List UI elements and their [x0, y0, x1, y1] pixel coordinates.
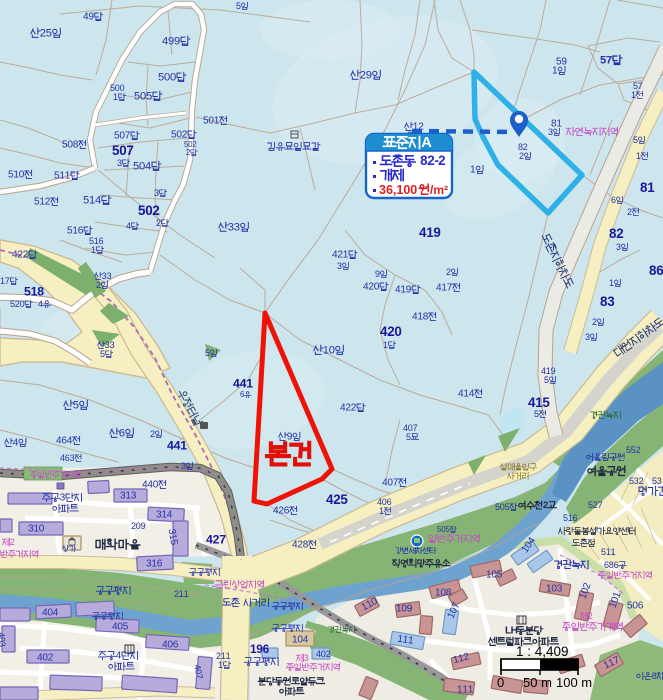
svg-text:2: 2 [152, 203, 159, 218]
svg-text:3: 3 [0, 641, 7, 647]
svg-text:7: 7 [638, 81, 643, 91]
svg-text:5: 5 [497, 570, 503, 581]
svg-text:2: 2 [588, 611, 593, 621]
svg-text:1: 1 [631, 90, 636, 100]
svg-text:2: 2 [636, 445, 641, 455]
svg-text:1: 1 [468, 685, 474, 696]
svg-text:6: 6 [284, 506, 290, 517]
svg-text:4: 4 [38, 299, 43, 309]
svg-text:7: 7 [598, 500, 603, 510]
svg-text:2: 2 [48, 653, 54, 664]
svg-text:4: 4 [145, 161, 151, 173]
svg-text:4: 4 [126, 221, 131, 231]
svg-text:6: 6 [78, 226, 84, 237]
svg-text:5: 5 [146, 91, 152, 103]
svg-text:1: 1 [343, 250, 349, 261]
svg-text:1: 1 [470, 165, 476, 176]
svg-text:5: 5 [445, 525, 450, 534]
svg-text:3: 3 [304, 653, 309, 663]
svg-text:9: 9 [375, 269, 380, 279]
svg-text:4: 4 [53, 608, 59, 619]
svg-text:9: 9 [407, 604, 413, 615]
svg-text:8: 8 [37, 284, 44, 298]
svg-text:6: 6 [99, 236, 104, 246]
svg-text:1 : 4,409: 1 : 4,409 [516, 644, 569, 659]
svg-text:7: 7 [447, 283, 453, 294]
svg-text:5: 5 [205, 348, 210, 358]
svg-text:7: 7 [219, 532, 226, 546]
svg-text:1: 1 [609, 278, 614, 288]
svg-text:0: 0 [153, 480, 159, 491]
svg-text:5: 5 [123, 622, 129, 633]
svg-text:50 m: 50 m [523, 675, 552, 690]
svg-text:3: 3 [607, 294, 614, 309]
svg-text:3: 3 [117, 158, 122, 168]
svg-text:8: 8 [446, 588, 452, 599]
svg-text:7: 7 [125, 131, 131, 142]
svg-text:6: 6 [240, 390, 244, 399]
svg-text:5: 5 [73, 400, 79, 412]
svg-text:6: 6 [656, 263, 663, 278]
svg-text:5: 5 [406, 432, 411, 442]
svg-text:1: 1 [636, 151, 641, 161]
svg-text:0: 0 [329, 345, 335, 357]
svg-text:4: 4 [116, 651, 122, 662]
svg-text:9: 9 [88, 12, 94, 23]
svg-text:3: 3 [181, 461, 186, 471]
svg-text:5: 5 [100, 349, 105, 359]
svg-text:6: 6 [387, 497, 392, 507]
svg-text:7: 7 [393, 478, 399, 489]
svg-text:0: 0 [120, 83, 125, 93]
svg-text:7: 7 [5, 276, 10, 286]
svg-text:3: 3 [548, 127, 553, 137]
svg-text:3: 3 [107, 271, 112, 281]
svg-text:1: 1 [383, 340, 388, 350]
svg-text:0: 0 [20, 299, 25, 309]
svg-text:A: A [421, 135, 432, 151]
svg-text:7: 7 [413, 423, 418, 433]
svg-text:36,100: 36,100 [379, 183, 417, 197]
svg-text:1: 1 [184, 589, 189, 599]
svg-text:5: 5 [46, 28, 52, 40]
svg-text:2: 2 [616, 226, 623, 241]
svg-text:2: 2 [543, 500, 548, 511]
svg-text:1: 1 [226, 651, 231, 661]
svg-text:2: 2 [10, 537, 15, 547]
svg-text:2: 2 [23, 250, 29, 261]
svg-text:2: 2 [639, 476, 644, 486]
svg-text:3: 3 [110, 340, 115, 350]
svg-text:9: 9 [433, 225, 440, 240]
svg-text:1: 1 [379, 506, 384, 516]
svg-text:/m²: /m² [430, 183, 448, 197]
svg-text:4: 4 [95, 195, 101, 207]
svg-text:9: 9 [287, 432, 293, 443]
svg-text:2: 2 [519, 151, 524, 161]
svg-text:1: 1 [180, 438, 187, 452]
svg-text:1: 1 [214, 116, 220, 127]
svg-text:9: 9 [561, 57, 567, 68]
svg-text:7: 7 [606, 55, 612, 67]
svg-text:8: 8 [303, 540, 309, 551]
svg-text:9: 9 [406, 285, 412, 296]
svg-text:5: 5 [633, 135, 638, 145]
svg-text:1: 1 [113, 92, 118, 102]
svg-text:0: 0 [39, 524, 45, 535]
svg-text:2: 2 [627, 207, 632, 217]
svg-text:8: 8 [652, 671, 657, 681]
svg-text:2: 2 [45, 197, 51, 208]
svg-text:0: 0 [394, 324, 401, 339]
svg-text:2: 2 [351, 403, 357, 414]
svg-text:5: 5 [534, 409, 539, 419]
svg-text:1: 1 [246, 376, 253, 390]
svg-text:0: 0 [374, 282, 380, 293]
svg-text:6: 6 [263, 642, 270, 656]
svg-text:2: 2 [186, 148, 190, 157]
svg-text:2: 2 [438, 153, 445, 168]
svg-text:5: 5 [505, 502, 510, 512]
svg-text:3: 3 [154, 188, 159, 198]
svg-text:1: 1 [552, 66, 558, 77]
svg-text:9: 9 [551, 366, 556, 376]
svg-text:7: 7 [126, 143, 133, 158]
svg-text:1: 1 [65, 171, 71, 182]
svg-text:0: 0 [19, 170, 25, 181]
svg-text:6: 6 [157, 559, 163, 570]
svg-text:1: 1 [647, 180, 655, 195]
svg-text:4: 4 [167, 510, 173, 521]
svg-text:2: 2 [192, 140, 196, 149]
svg-text:2: 2 [592, 317, 597, 327]
svg-text:3: 3 [234, 222, 240, 234]
svg-text:5: 5 [340, 492, 348, 507]
svg-text:2: 2 [446, 267, 451, 277]
svg-text:5: 5 [544, 375, 549, 385]
svg-text:4: 4 [469, 389, 475, 400]
svg-text:8: 8 [423, 312, 429, 323]
svg-text:100 m: 100 m [556, 675, 592, 690]
svg-text:6: 6 [173, 640, 179, 651]
svg-text:4: 4 [303, 635, 309, 646]
svg-text:6: 6 [119, 428, 125, 440]
svg-text:0: 0 [497, 675, 504, 690]
svg-text:9: 9 [174, 36, 180, 48]
svg-text:3: 3 [616, 242, 621, 252]
svg-text:3: 3 [70, 453, 75, 463]
svg-text:3: 3 [337, 261, 342, 271]
svg-text:9: 9 [366, 70, 372, 82]
svg-text:6: 6 [638, 601, 644, 612]
svg-text:1: 1 [611, 547, 616, 557]
svg-text:6: 6 [573, 513, 578, 523]
svg-text:1: 1 [91, 245, 96, 255]
svg-text:4: 4 [13, 438, 19, 449]
svg-text:1: 1 [218, 660, 223, 670]
svg-text:0: 0 [170, 72, 176, 84]
svg-text:5: 5 [542, 395, 550, 410]
svg-text:2: 2 [150, 429, 155, 439]
svg-text:6: 6 [614, 560, 619, 570]
svg-text:8: 8 [73, 140, 79, 151]
svg-text:5: 5 [236, 1, 241, 11]
svg-text:2: 2 [156, 218, 161, 228]
svg-text:9: 9 [141, 521, 146, 531]
svg-text:3: 3 [131, 491, 137, 502]
svg-text:3: 3 [585, 332, 590, 342]
svg-text:2: 2 [96, 280, 101, 290]
svg-text:6: 6 [611, 195, 616, 205]
svg-text:2: 2 [326, 649, 331, 659]
svg-text:3: 3 [557, 584, 563, 595]
svg-text:3: 3 [60, 493, 66, 504]
svg-text:4: 4 [67, 436, 73, 447]
svg-text:3: 3 [657, 476, 662, 486]
